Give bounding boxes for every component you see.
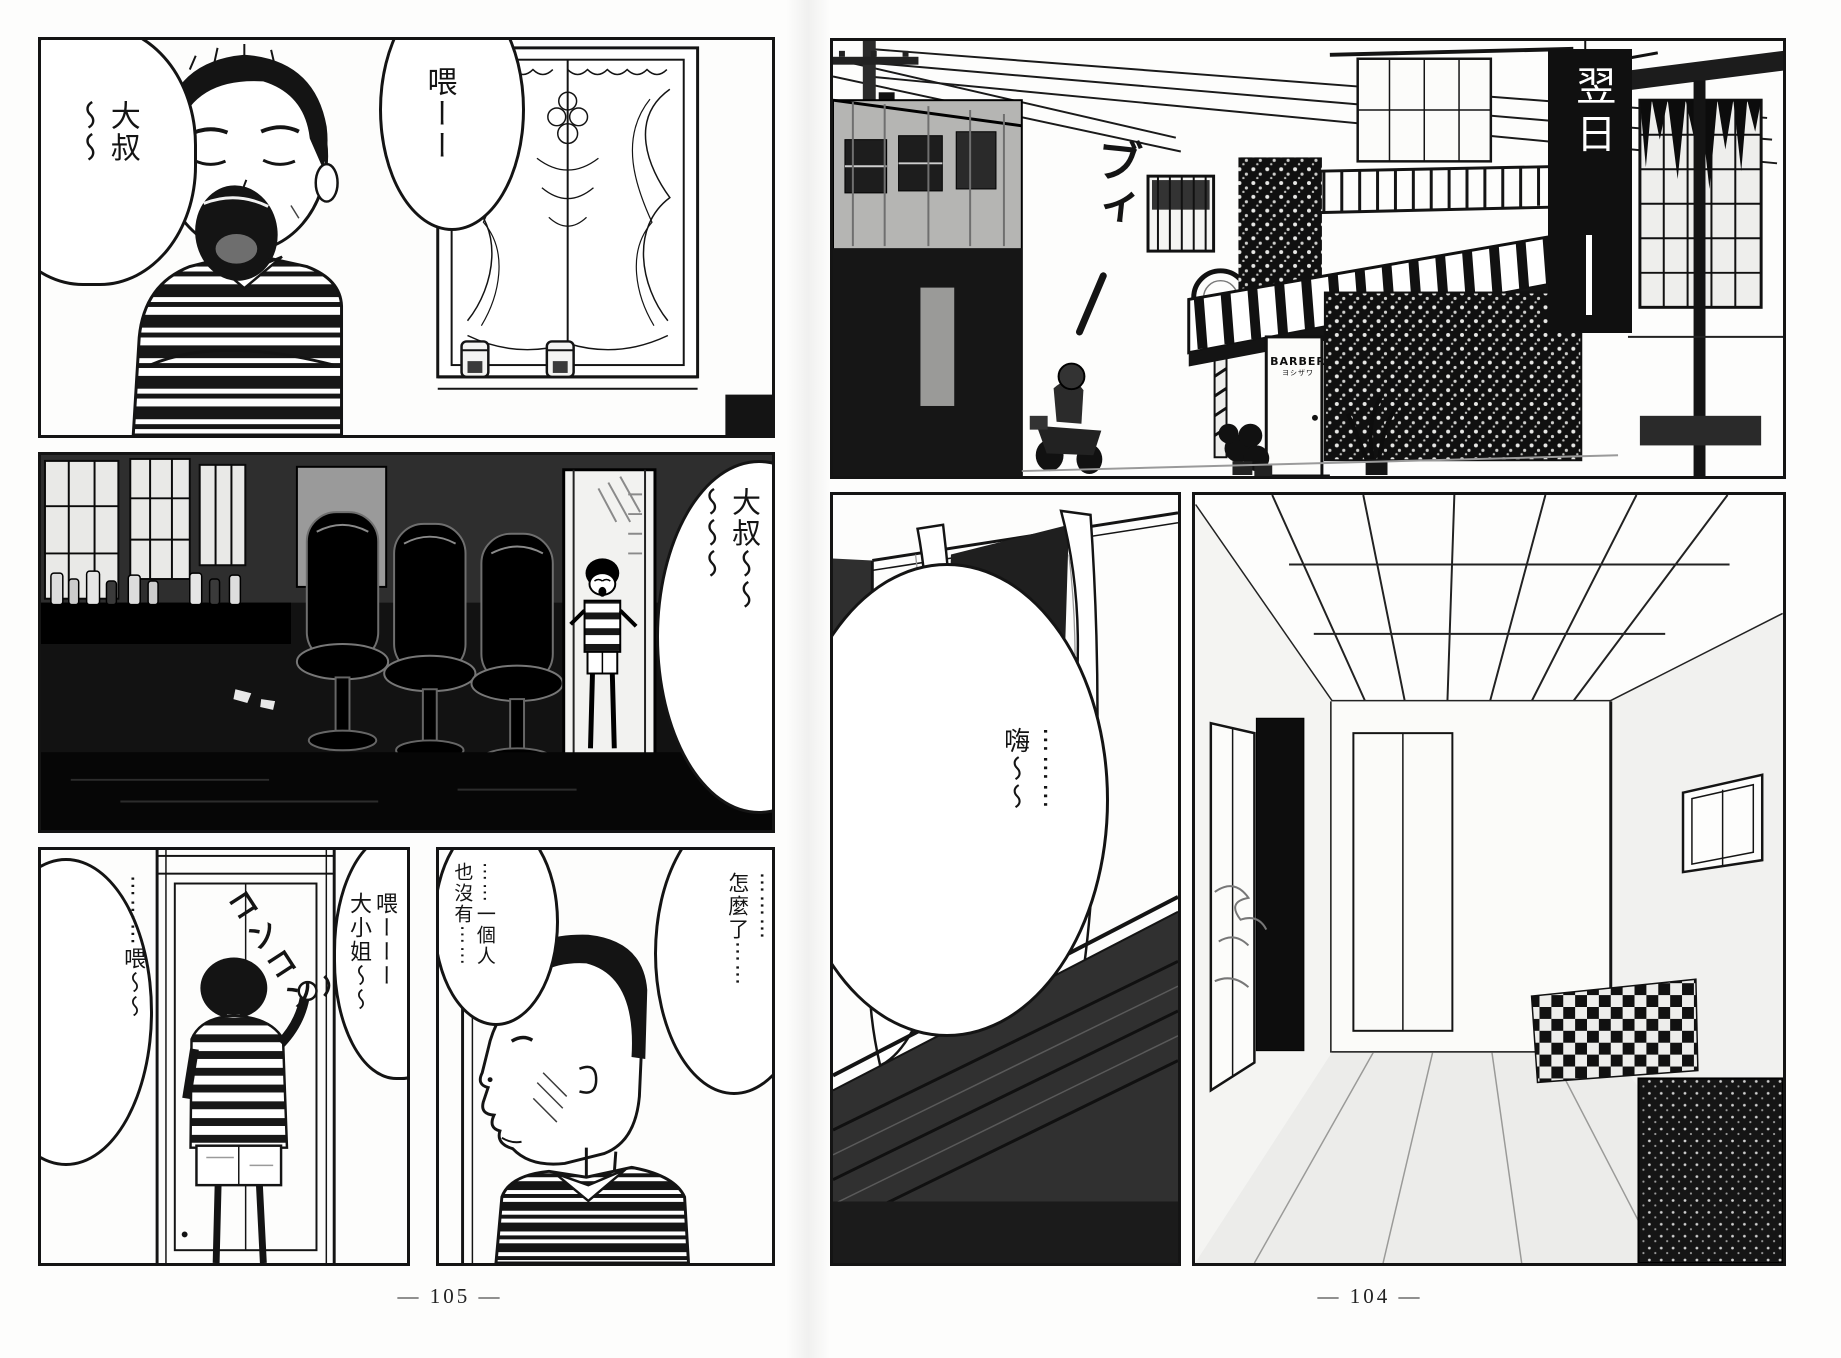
page-number-right: — 104 — (1285, 1284, 1455, 1309)
speech-text: 大叔 〜〜 (69, 100, 140, 164)
street-art (833, 41, 1783, 476)
speech-text: 喂ーー (421, 66, 456, 162)
speech-text: ⋯⋯⋯喂〜〜 (119, 875, 145, 1019)
room-art (1195, 495, 1783, 1263)
speech-col: 〜〜〜 (693, 487, 727, 611)
panel-empty-room (1192, 492, 1786, 1266)
panel-knocking-door: ⋯⋯⋯喂〜〜 コンコン 喂ーーー 大小姐〜〜 (38, 847, 410, 1266)
speech-col: 大叔 (104, 100, 139, 164)
speech-col: 大叔〜〜 (727, 487, 761, 611)
barber-chairs (297, 512, 563, 768)
speech-col: 喂ーー (421, 66, 456, 162)
speech-col: 〜〜 (69, 100, 104, 164)
speech-col: 喂ーーー (371, 892, 397, 1012)
next-day-banner: 翌日 (1548, 49, 1632, 333)
speech-text: 大叔〜〜 〜〜〜 (693, 487, 761, 611)
panel-street-scene: ブィ 翌日 BARBER ヨシザワ (830, 38, 1786, 479)
page-number-left: — 105 — (365, 1284, 535, 1309)
speech-col: ⋯⋯⋯ (750, 872, 775, 987)
speech-text: ⋯⋯⋯ 怎麼了⋯⋯ (725, 872, 775, 987)
banner-text: 翌日 (1568, 65, 1615, 161)
checkered-tiles (1532, 979, 1698, 1082)
speech-col: ⋯⋯一個人 (473, 862, 495, 967)
panel-barbershop-interior: 大叔〜〜 〜〜〜 (38, 452, 775, 833)
speech-text: ⋯⋯一個人 也沒有⋯⋯ (451, 862, 496, 967)
speech-col: 大小姐〜〜 (345, 892, 371, 1012)
speech-col: 嗨〜〜 (999, 727, 1030, 811)
speech-text: ⋯⋯⋯ 嗨〜〜 (999, 727, 1060, 811)
banner-dash (1586, 235, 1592, 315)
barber-sign-subtext: ヨシザワ (1270, 368, 1326, 378)
left-buildings (833, 100, 1022, 476)
speech-text: 喂ーーー 大小姐〜〜 (345, 892, 397, 1012)
speech-col: ⋯⋯⋯ (1030, 727, 1061, 811)
speech-col: 也沒有⋯⋯ (451, 862, 473, 967)
barber-sign-text: BARBER (1270, 355, 1326, 368)
page-gutter (786, 0, 830, 1358)
hedge (1325, 293, 1581, 461)
sfx-engine: ブィ (1076, 134, 1151, 232)
speech-col: 怎麼了⋯⋯ (725, 872, 750, 987)
barber-door-sign: BARBER ヨシザワ (1270, 355, 1326, 378)
barred-window (1148, 176, 1214, 251)
panel-yawning-man: 大叔 〜〜 喂ーー (38, 37, 775, 438)
dark-mat (1638, 1078, 1783, 1263)
manga-double-page-scan: 大叔 〜〜 喂ーー (0, 0, 1841, 1358)
panel-face-profile: ⋯⋯一個人 也沒有⋯⋯ ⋯⋯⋯ 怎麼了⋯⋯ (436, 847, 775, 1266)
dark-opening (1256, 718, 1304, 1050)
dark-corner (725, 395, 772, 435)
panel-curtain-window: ⋯⋯⋯ 嗨〜〜 (830, 492, 1181, 1266)
speech-col: ⋯⋯⋯喂〜〜 (119, 875, 145, 1019)
